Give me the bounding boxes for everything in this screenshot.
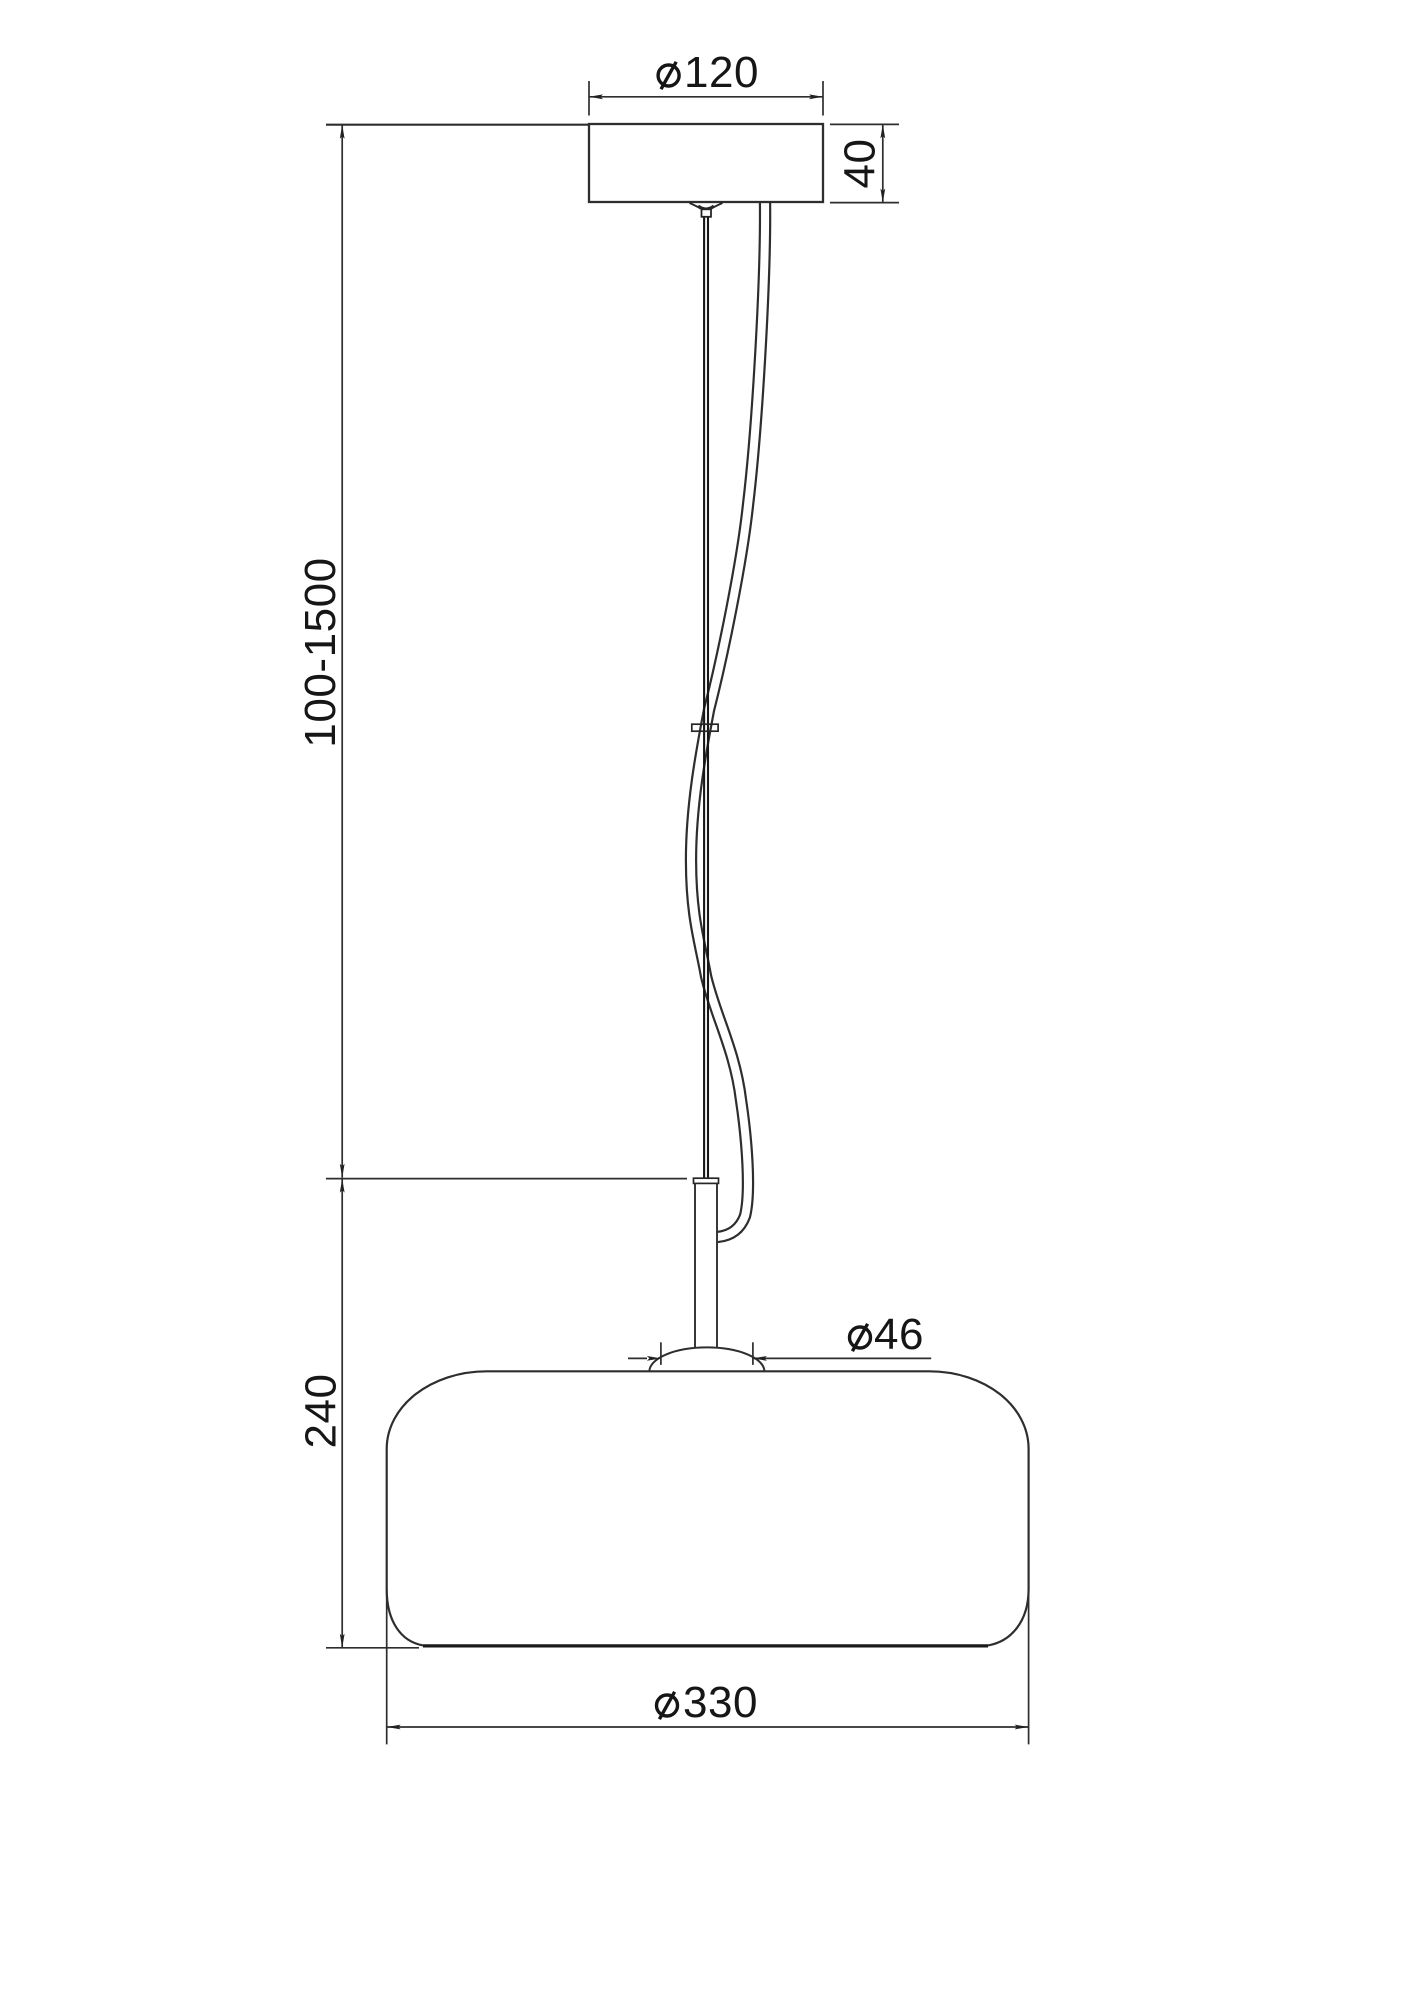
svg-text:46: 46 [874, 1310, 924, 1359]
svg-text:40: 40 [836, 138, 885, 188]
svg-text:100-1500: 100-1500 [296, 557, 345, 747]
svg-text:240: 240 [297, 1373, 346, 1448]
svg-text:330: 330 [683, 1678, 758, 1727]
svg-text:120: 120 [684, 48, 759, 97]
